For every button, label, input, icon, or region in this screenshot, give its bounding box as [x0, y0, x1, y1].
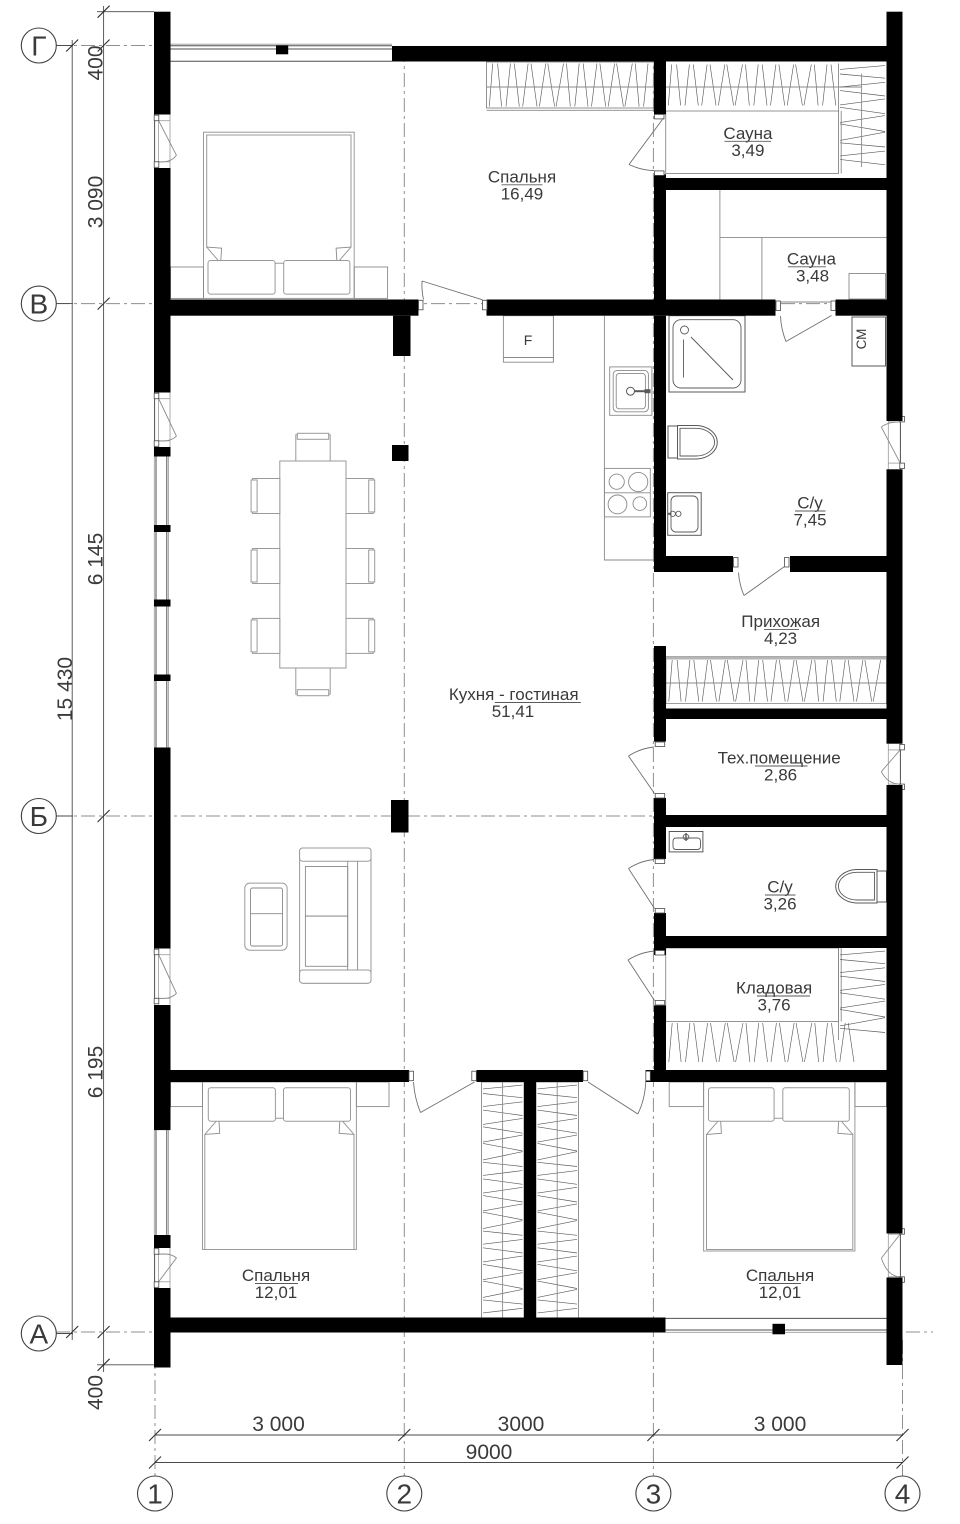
- svg-text:1: 1: [147, 1479, 163, 1510]
- svg-text:9000: 9000: [466, 1441, 513, 1464]
- svg-text:12,01: 12,01: [759, 1283, 802, 1302]
- svg-text:3 000: 3 000: [754, 1413, 807, 1436]
- svg-text:400: 400: [85, 45, 108, 80]
- svg-text:4,23: 4,23: [764, 629, 797, 648]
- svg-text:3,26: 3,26: [763, 895, 796, 914]
- svg-text:2,86: 2,86: [764, 766, 797, 785]
- svg-text:3000: 3000: [498, 1413, 545, 1436]
- svg-text:16,49: 16,49: [501, 184, 544, 203]
- svg-text:Г: Г: [31, 31, 46, 62]
- svg-text:51,41: 51,41: [492, 702, 535, 721]
- svg-text:400: 400: [85, 1375, 108, 1410]
- svg-text:СМ: СМ: [854, 329, 869, 350]
- svg-text:3: 3: [646, 1479, 662, 1510]
- svg-text:Б: Б: [30, 801, 48, 832]
- svg-text:В: В: [29, 289, 48, 320]
- svg-text:3,76: 3,76: [758, 996, 791, 1015]
- svg-text:F: F: [524, 332, 533, 348]
- svg-text:А: А: [29, 1319, 48, 1350]
- svg-text:6 145: 6 145: [85, 533, 108, 586]
- svg-text:3,49: 3,49: [731, 141, 764, 160]
- svg-text:2: 2: [397, 1479, 413, 1510]
- svg-text:12,01: 12,01: [255, 1283, 298, 1302]
- svg-text:3,48: 3,48: [796, 266, 829, 285]
- svg-text:6 195: 6 195: [85, 1046, 108, 1099]
- svg-text:3 090: 3 090: [85, 176, 108, 229]
- svg-text:15 430: 15 430: [54, 657, 77, 721]
- svg-text:4: 4: [895, 1479, 911, 1510]
- svg-text:7,45: 7,45: [793, 511, 826, 530]
- svg-text:3 000: 3 000: [252, 1413, 305, 1436]
